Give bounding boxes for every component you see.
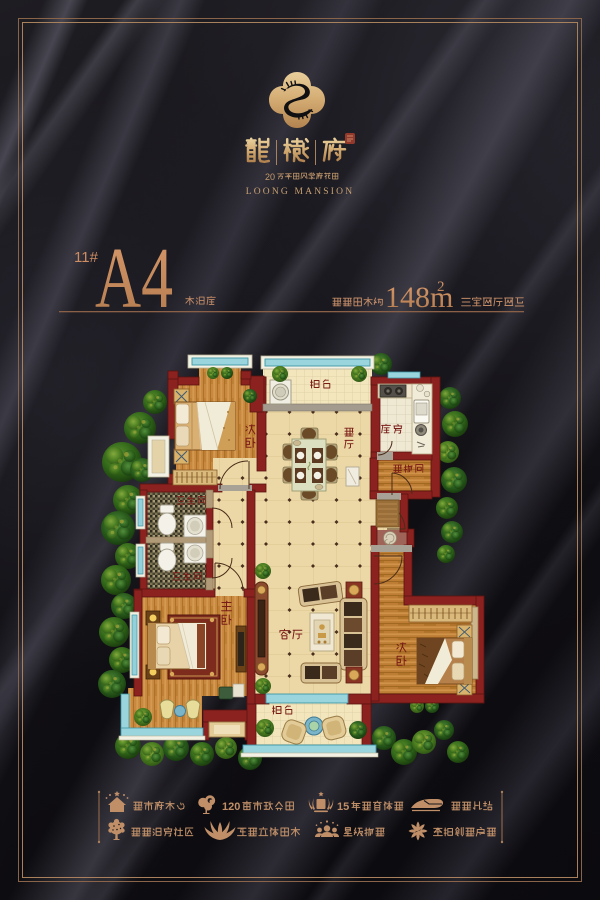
svg-text:20: 20	[265, 172, 275, 182]
svg-text:15: 15	[337, 801, 349, 813]
svg-text:120: 120	[222, 801, 240, 813]
svg-text:LOONG MANSION: LOONG MANSION	[246, 187, 355, 197]
svg-text:2: 2	[437, 279, 445, 295]
